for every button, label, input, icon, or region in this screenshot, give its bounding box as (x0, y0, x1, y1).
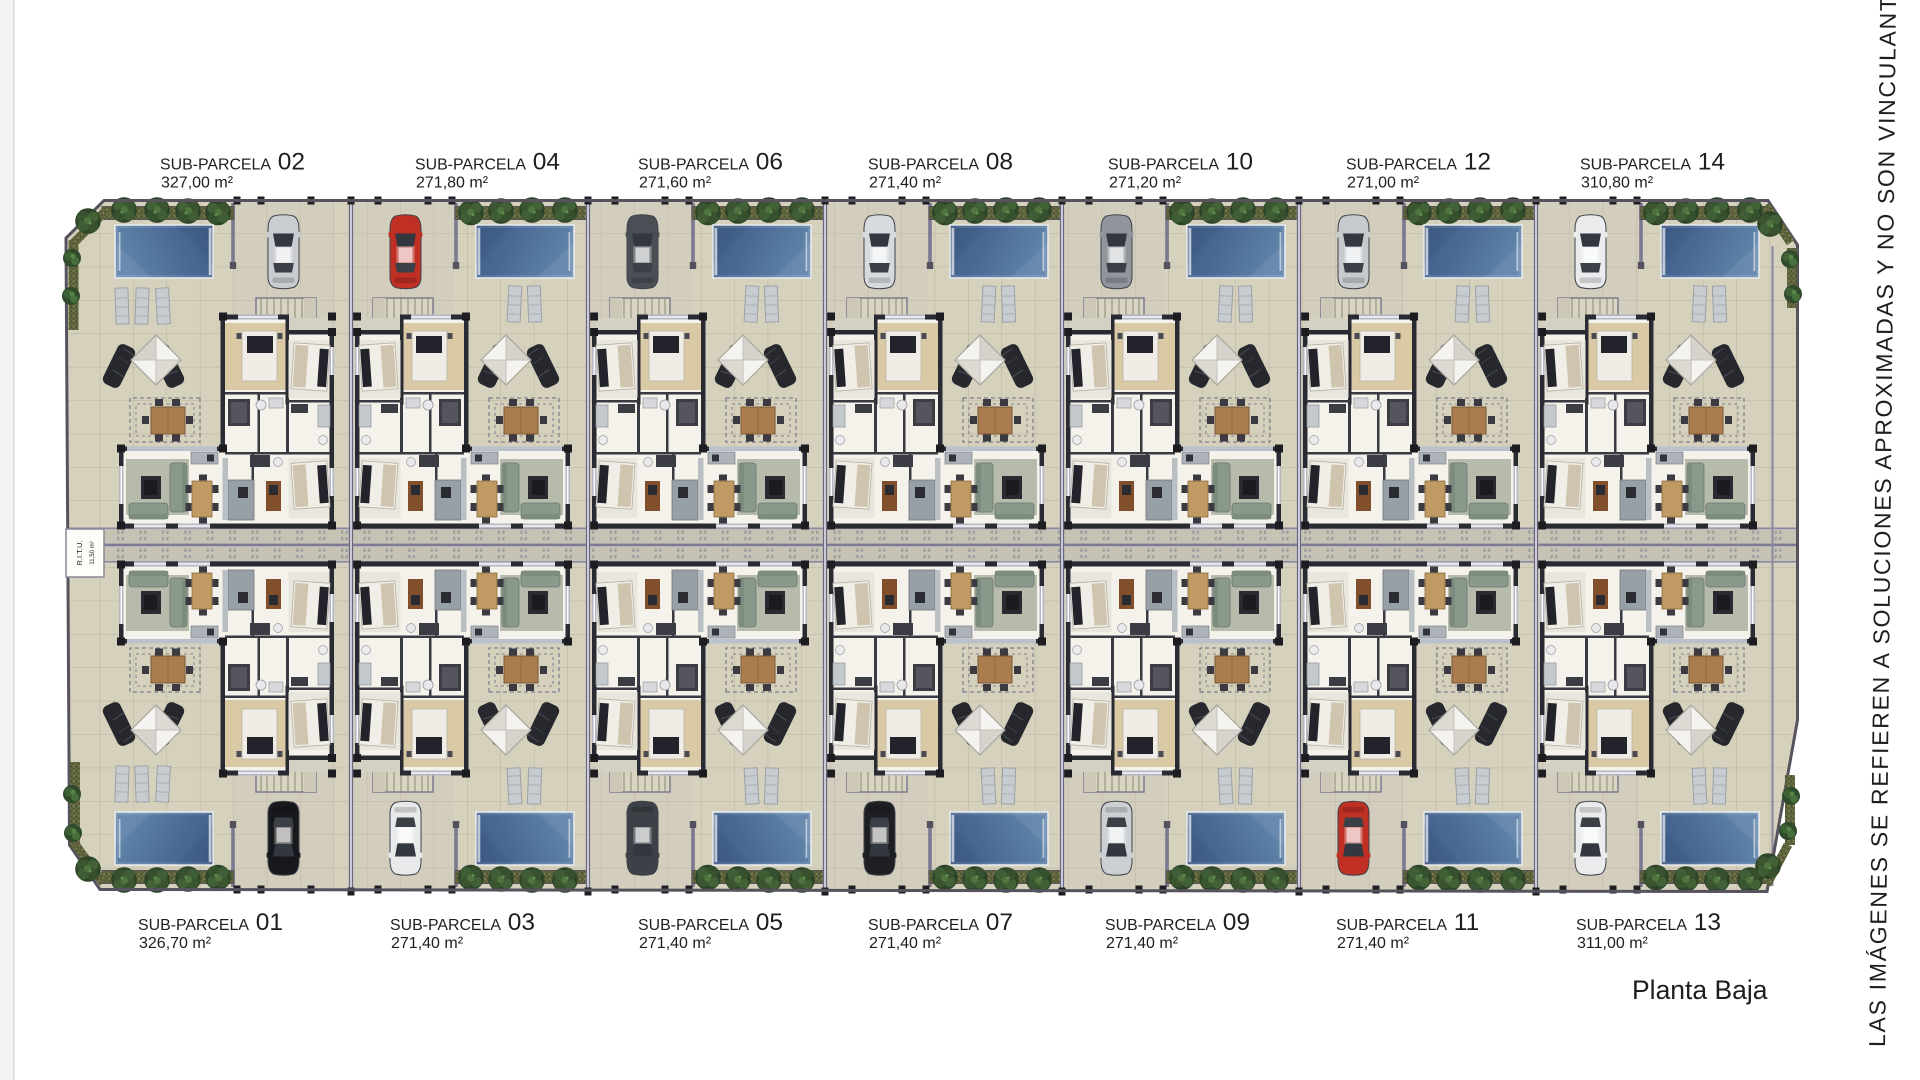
svg-text:271,80 m²: 271,80 m² (416, 175, 489, 192)
svg-text:271,00 m²: 271,00 m² (1347, 175, 1420, 192)
svg-text:326,70 m²: 326,70 m² (139, 935, 212, 952)
svg-text:Planta Baja: Planta Baja (1632, 975, 1768, 1005)
svg-text:R.I.T.U.: R.I.T.U. (75, 540, 84, 565)
svg-text:271,40 m²: 271,40 m² (391, 935, 464, 952)
svg-text:271,40 m²: 271,40 m² (869, 175, 942, 192)
svg-text:271,40 m²: 271,40 m² (1337, 935, 1410, 952)
svg-text:271,40 m²: 271,40 m² (639, 935, 712, 952)
svg-text:311,00 m²: 311,00 m² (1577, 935, 1649, 952)
svg-text:271,40 m²: 271,40 m² (1106, 935, 1179, 952)
svg-text:327,00 m²: 327,00 m² (161, 175, 234, 192)
svg-text:310,80 m²: 310,80 m² (1581, 175, 1654, 192)
svg-text:11,50 m²: 11,50 m² (90, 541, 96, 564)
svg-text:271,40 m²: 271,40 m² (869, 935, 942, 952)
svg-text:271,20 m²: 271,20 m² (1109, 175, 1182, 192)
svg-text:271,60 m²: 271,60 m² (639, 175, 712, 192)
